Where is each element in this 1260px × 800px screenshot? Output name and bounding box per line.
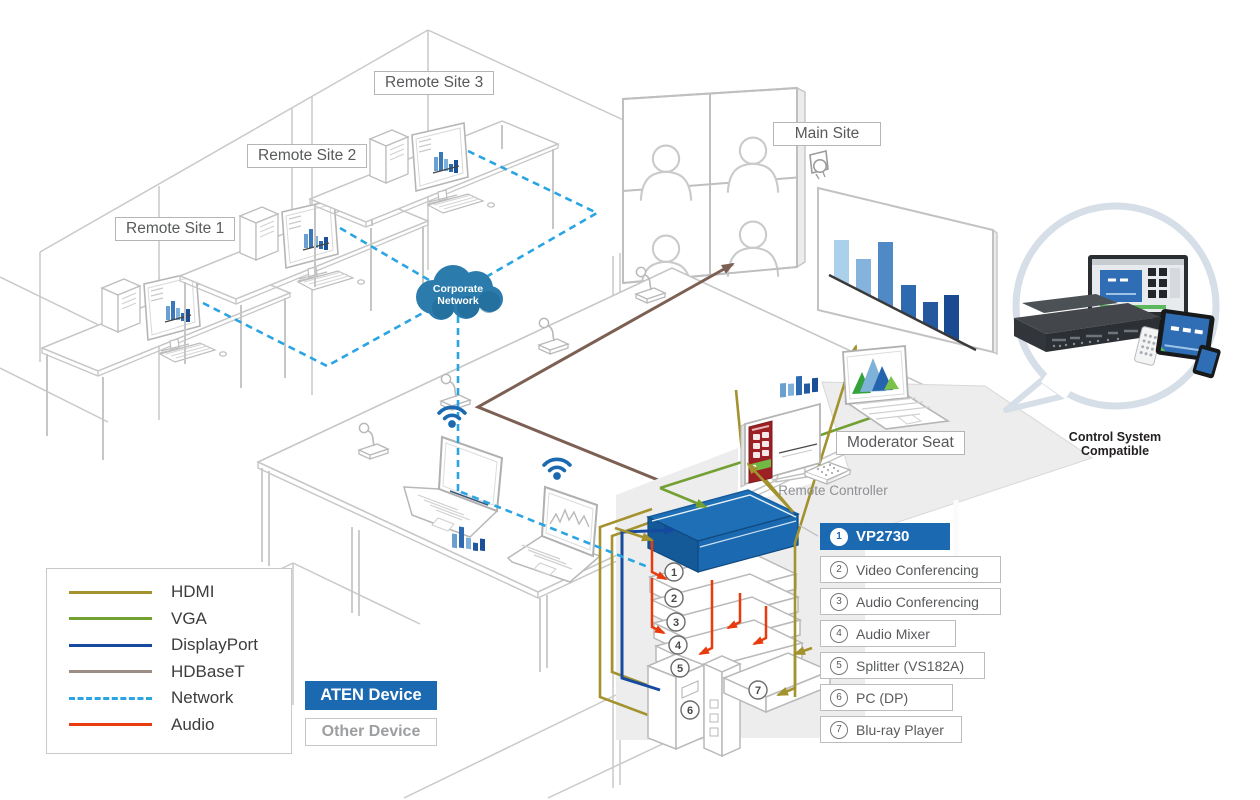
- legend-label: HDBaseT: [171, 662, 245, 682]
- control-system-bubble: [1006, 206, 1221, 410]
- legend-label: Network: [171, 688, 233, 708]
- legend-row-network: Network: [69, 685, 291, 712]
- item-label: Video Conferencing: [856, 562, 979, 578]
- item-label: Audio Mixer: [856, 626, 930, 642]
- item-number-badge: 6: [830, 689, 848, 707]
- remote-site-1-desk: [42, 270, 290, 460]
- legend-row-hdmi: HDMI: [69, 579, 291, 606]
- remote-site-1-label: Remote Site 1: [115, 217, 235, 241]
- legend-label: DisplayPort: [171, 635, 258, 655]
- svg-text:1: 1: [671, 567, 677, 579]
- legend-row-hdbaset: HDBaseT: [69, 659, 291, 686]
- aten-vp2730-diagram: 1 2 3 4 5 6 7: [0, 0, 1260, 800]
- item-number-badge: 3: [830, 593, 848, 611]
- item-label: Splitter (VS182A): [856, 658, 964, 674]
- item-label: Blu-ray Player: [856, 722, 944, 738]
- item-label: Audio Conferencing: [856, 594, 979, 610]
- other-device-key: Other Device: [305, 718, 437, 746]
- svg-text:5: 5: [677, 663, 683, 675]
- legend-label: Audio: [171, 715, 214, 735]
- cloud-label-line2: Network: [406, 296, 510, 308]
- item-number-badge: 5: [830, 657, 848, 675]
- legend-row-vga: VGA: [69, 606, 291, 633]
- network-line-swatch: [69, 697, 152, 700]
- equipment-item-audio-conferencing: 3 Audio Conferencing: [820, 588, 1001, 615]
- svg-text:4: 4: [675, 640, 682, 652]
- hdbaset-line-swatch: [69, 670, 152, 673]
- cloud-label-line1: Corporate: [406, 284, 510, 296]
- corporate-network-label: Corporate Network: [406, 284, 510, 307]
- legend-row-displayport: DisplayPort: [69, 632, 291, 659]
- equipment-item-bluray: 7 Blu-ray Player: [820, 716, 962, 743]
- svg-text:7: 7: [755, 685, 761, 697]
- equipment-item-pc-dp: 6 PC (DP): [820, 684, 953, 711]
- equipment-item-vp2730: 1 VP2730: [820, 523, 950, 550]
- video-wall: [623, 88, 805, 291]
- legend-row-audio: Audio: [69, 712, 291, 739]
- svg-text:2: 2: [671, 593, 677, 605]
- vga-line-swatch: [69, 617, 152, 620]
- projection-screen: [818, 188, 997, 354]
- remote-site-2-label: Remote Site 2: [247, 144, 367, 168]
- legend-label: HDMI: [171, 582, 214, 602]
- item-number-badge: 4: [830, 625, 848, 643]
- svg-text:6: 6: [687, 705, 693, 717]
- item-label: PC (DP): [856, 690, 908, 706]
- remote-controller-label: Remote Controller: [758, 483, 908, 498]
- equipment-item-audio-mixer: 4 Audio Mixer: [820, 620, 956, 647]
- hdmi-line-swatch: [69, 591, 152, 594]
- item-number-badge: 2: [830, 561, 848, 579]
- audio-line-swatch: [69, 723, 152, 726]
- item-label: VP2730: [856, 528, 909, 545]
- remote-site-3-label: Remote Site 3: [374, 71, 494, 95]
- tall-tower: [704, 656, 740, 756]
- control-system-caption: Control System Compatible: [1035, 430, 1195, 458]
- main-site-label: Main Site: [773, 122, 881, 146]
- item-number-badge: 1: [830, 528, 848, 546]
- legend: HDMI VGA DisplayPort HDBaseT Network Aud…: [46, 568, 292, 754]
- equipment-item-splitter: 5 Splitter (VS182A): [820, 652, 985, 679]
- moderator-seat-label: Moderator Seat: [836, 431, 965, 455]
- legend-label: VGA: [171, 609, 207, 629]
- item-number-badge: 7: [830, 721, 848, 739]
- equipment-item-video-conferencing: 2 Video Conferencing: [820, 556, 1001, 583]
- camera-icon: [810, 151, 828, 179]
- displayport-line-swatch: [69, 644, 152, 647]
- aten-device-key: ATEN Device: [305, 681, 437, 710]
- svg-text:3: 3: [673, 617, 679, 629]
